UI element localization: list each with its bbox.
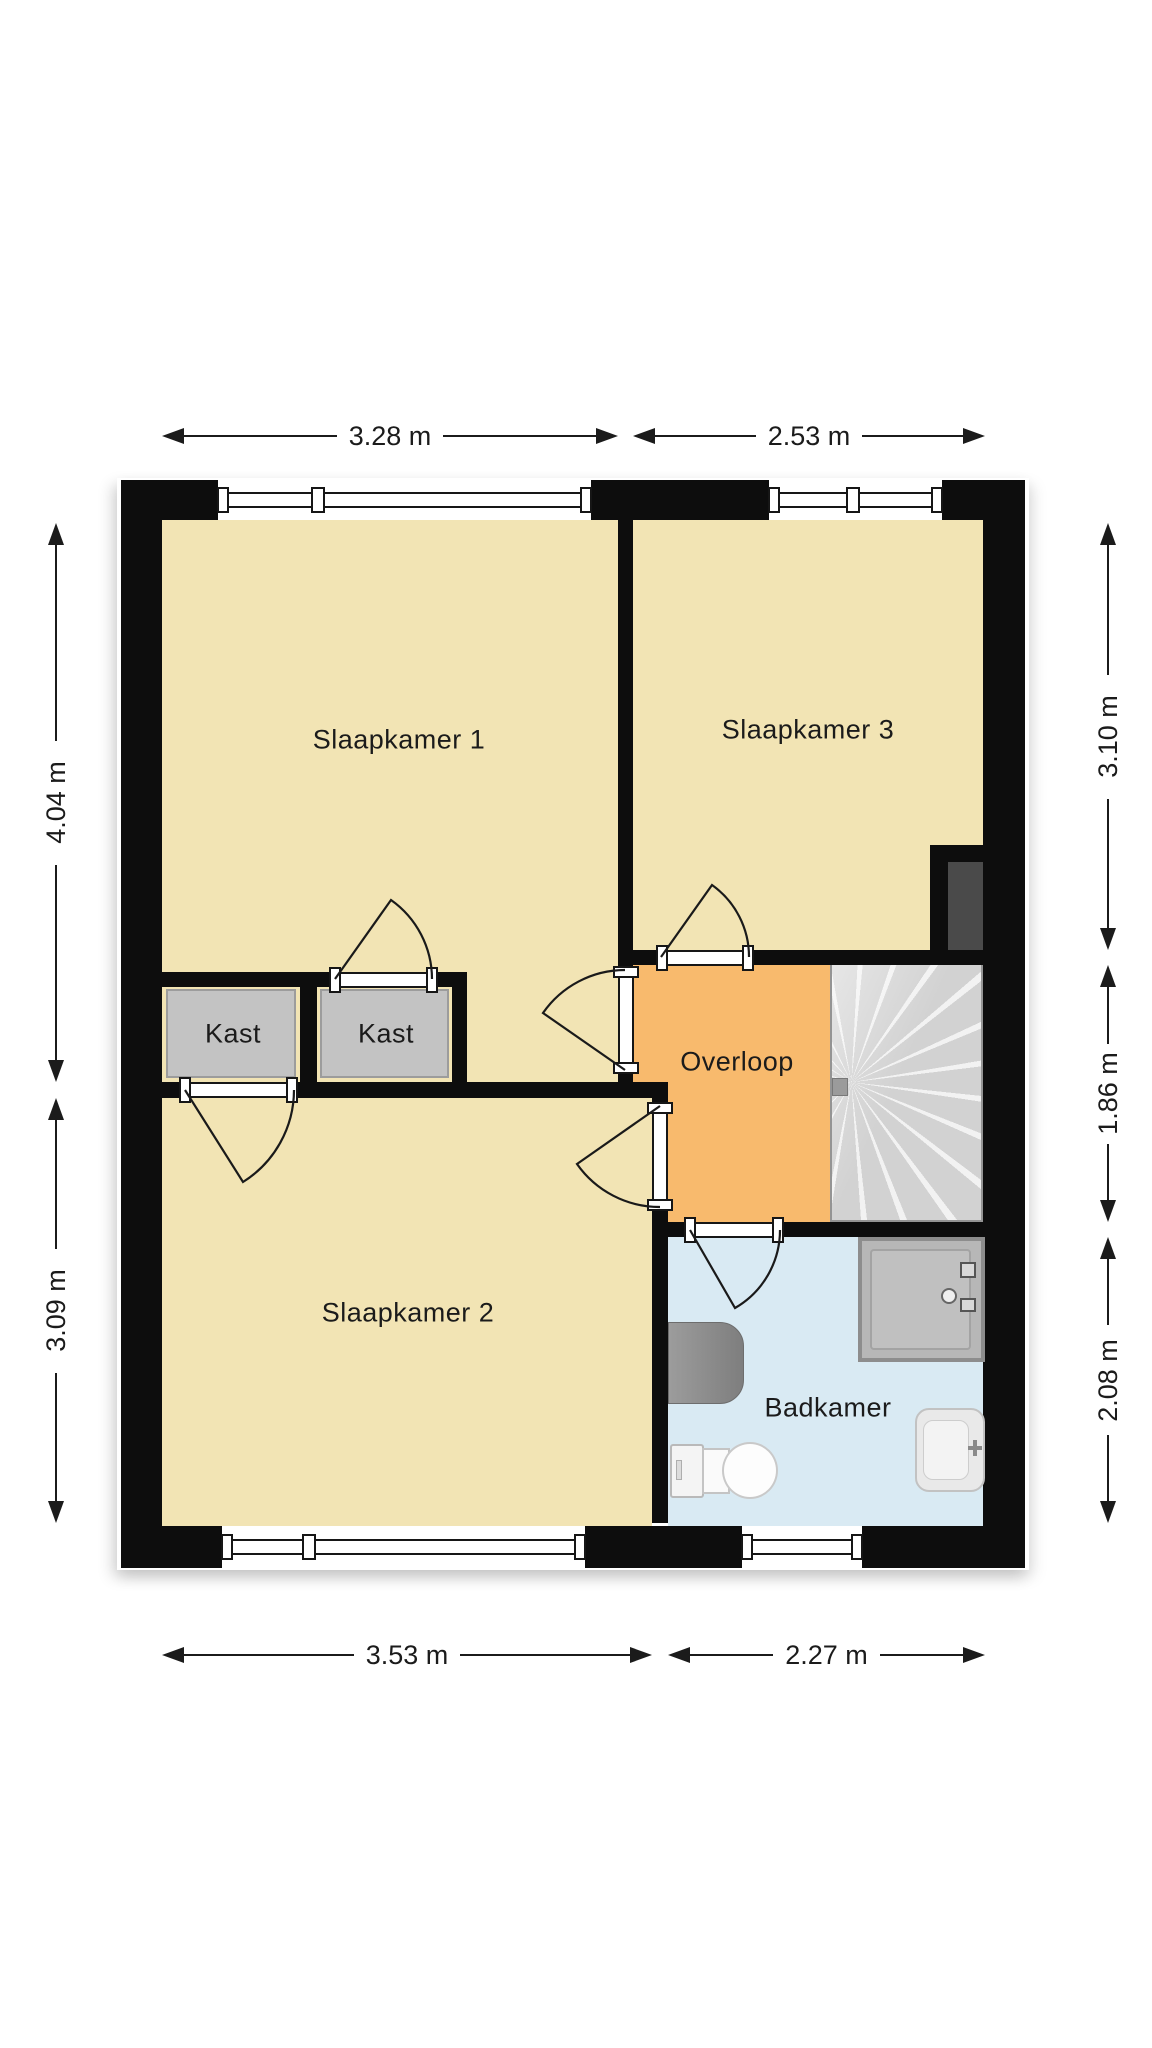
- wall-divider-s1-s3: [618, 520, 633, 965]
- arrow-down-icon: [1100, 1200, 1116, 1222]
- door-frame-cap: [329, 967, 341, 993]
- window-frame-cap: [574, 1534, 586, 1560]
- arrow-right-icon: [596, 428, 618, 444]
- arrow-left-icon: [668, 1647, 690, 1663]
- arrow-left-icon: [162, 428, 184, 444]
- door-frame-cap: [286, 1077, 298, 1103]
- dimension-label: 2.53 m: [756, 421, 863, 452]
- door-threshold: [618, 974, 634, 1066]
- door-frame-cap: [742, 945, 754, 971]
- window-glazing: [225, 492, 584, 508]
- stairs-newel: [832, 1078, 848, 1096]
- dimension-label: 3.10 m: [1093, 695, 1124, 778]
- door-threshold: [337, 972, 430, 988]
- door-opening-kast1: [180, 1082, 297, 1098]
- window-slaapkamer-2: [222, 1526, 585, 1568]
- room-label-kast-2: Kast: [358, 1019, 414, 1050]
- window-glazing: [229, 1539, 578, 1555]
- wall-right: [983, 480, 1025, 1568]
- dimension-label: 2.08 m: [1093, 1339, 1124, 1422]
- arrow-right-icon: [963, 1647, 985, 1663]
- door-opening-kast2: [330, 972, 437, 987]
- door-threshold: [664, 950, 746, 966]
- window-mullion: [846, 487, 860, 513]
- door-opening-slaapkamer-3: [657, 950, 753, 965]
- window-frame-cap: [931, 487, 943, 513]
- dimension-label: 3.09 m: [41, 1269, 72, 1352]
- room-overloop-floor-lower: [668, 1082, 830, 1222]
- arrow-up-icon: [1100, 523, 1116, 545]
- room-label-slaapkamer-1: Slaapkamer 1: [313, 725, 486, 756]
- window-slaapkamer-3: [769, 480, 942, 520]
- window-mullion: [311, 487, 325, 513]
- arrow-up-icon: [1100, 965, 1116, 987]
- room-label-slaapkamer-3: Slaapkamer 3: [722, 715, 895, 746]
- door-frame-cap: [772, 1217, 784, 1243]
- arrow-left-icon: [162, 1647, 184, 1663]
- room-label-overloop: Overloop: [680, 1047, 794, 1078]
- arrow-up-icon: [48, 523, 64, 545]
- washing-machine: [668, 1322, 744, 1404]
- sink-faucet-icon: [973, 1440, 977, 1456]
- door-threshold: [187, 1082, 290, 1098]
- shower-valve-icon: [960, 1298, 976, 1312]
- floorplan-page: { "floorplan": { "rooms": [ {"id": "slaa…: [0, 0, 1152, 2048]
- door-frame-cap: [179, 1077, 191, 1103]
- arrow-right-icon: [630, 1647, 652, 1663]
- door-frame-cap: [656, 945, 668, 971]
- window-frame-cap: [741, 1534, 753, 1560]
- wall-badkamer-left: [652, 1222, 668, 1523]
- dimension-right-1: 3.10 m: [1091, 523, 1125, 950]
- stairs: [830, 963, 983, 1222]
- dimension-label: 3.53 m: [354, 1640, 461, 1671]
- door-frame-cap: [647, 1199, 673, 1211]
- window-frame-cap: [851, 1534, 863, 1560]
- room-label-badkamer: Badkamer: [764, 1393, 891, 1424]
- window-frame-cap: [580, 487, 592, 513]
- door-opening-slaapkamer-1: [618, 967, 633, 1073]
- room-label-kast-1: Kast: [205, 1019, 261, 1050]
- dimension-bottom-1: 3.53 m: [162, 1638, 652, 1672]
- window-glazing: [749, 1539, 855, 1555]
- window-slaapkamer-1: [218, 480, 591, 520]
- arrow-right-icon: [963, 428, 985, 444]
- arrow-left-icon: [633, 428, 655, 444]
- dimension-label: 4.04 m: [41, 761, 72, 844]
- dimension-right-3: 2.08 m: [1091, 1237, 1125, 1523]
- duct-shaft: [948, 862, 983, 950]
- arrow-down-icon: [48, 1501, 64, 1523]
- window-mullion: [302, 1534, 316, 1560]
- dimension-right-2: 1.86 m: [1091, 965, 1125, 1222]
- sink-basin: [923, 1420, 969, 1480]
- dimension-label: 1.86 m: [1093, 1052, 1124, 1135]
- door-frame-cap: [613, 966, 639, 978]
- dimension-label: 3.28 m: [337, 421, 444, 452]
- wall-kast-divider: [300, 972, 317, 1098]
- arrow-down-icon: [1100, 928, 1116, 950]
- dimension-left-1: 4.04 m: [39, 523, 73, 1082]
- window-badkamer: [742, 1526, 862, 1568]
- window-frame-cap: [217, 487, 229, 513]
- toilet-button-icon: [676, 1460, 682, 1480]
- window-frame-cap: [221, 1534, 233, 1560]
- shower-valve-icon: [960, 1262, 976, 1278]
- dimension-left-2: 3.09 m: [39, 1098, 73, 1523]
- dimension-label: 2.27 m: [773, 1640, 880, 1671]
- arrow-down-icon: [1100, 1501, 1116, 1523]
- door-frame-cap: [426, 967, 438, 993]
- dimension-bottom-2: 2.27 m: [668, 1638, 985, 1672]
- door-opening-badkamer: [685, 1222, 783, 1237]
- wall-left: [121, 480, 162, 1568]
- room-label-slaapkamer-2: Slaapkamer 2: [322, 1298, 495, 1329]
- wall-kast-right: [452, 972, 467, 1098]
- door-threshold: [652, 1110, 668, 1203]
- door-threshold: [692, 1222, 776, 1238]
- door-frame-cap: [647, 1102, 673, 1114]
- shower-head-icon: [941, 1288, 957, 1304]
- dimension-top-1: 3.28 m: [162, 419, 618, 453]
- door-opening-slaapkamer-2: [652, 1103, 668, 1210]
- arrow-down-icon: [48, 1060, 64, 1082]
- wall-duct-horizontal: [930, 845, 985, 862]
- dimension-top-2: 2.53 m: [633, 419, 985, 453]
- toilet-bowl: [722, 1442, 778, 1499]
- arrow-up-icon: [1100, 1237, 1116, 1259]
- window-frame-cap: [768, 487, 780, 513]
- door-frame-cap: [613, 1062, 639, 1074]
- arrow-up-icon: [48, 1098, 64, 1120]
- door-frame-cap: [684, 1217, 696, 1243]
